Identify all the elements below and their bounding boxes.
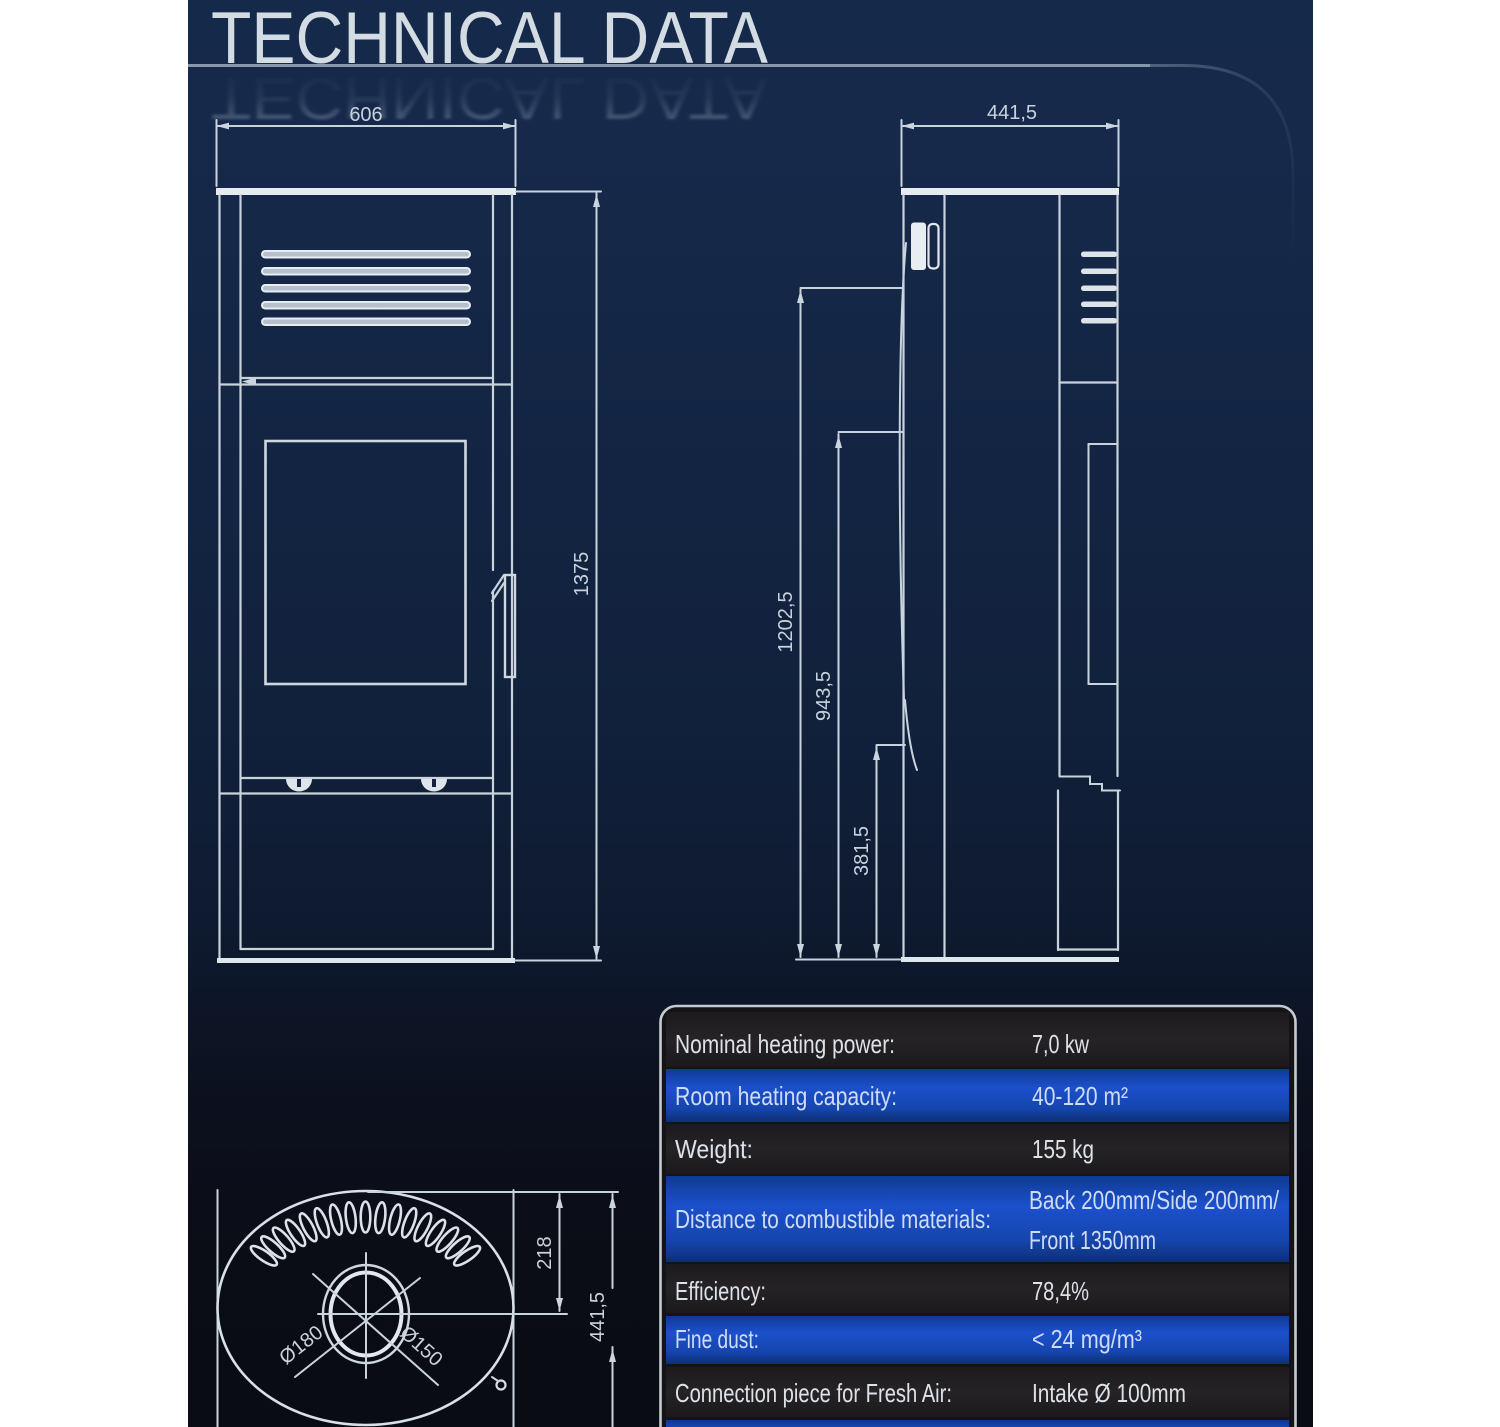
svg-text:1202,5: 1202,5 (775, 591, 797, 652)
svg-text:Connection piece for Fresh Air: Connection piece for Fresh Air: (675, 1378, 952, 1408)
svg-text:381,5: 381,5 (851, 826, 873, 876)
svg-text:7,0 kw: 7,0 kw (1032, 1029, 1089, 1059)
svg-text:Efficiency:: Efficiency: (675, 1276, 766, 1306)
svg-text:Nominal heating power:: Nominal heating power: (675, 1029, 895, 1059)
svg-text:TECHNICAL DATA: TECHNICAL DATA (211, 0, 768, 79)
svg-text:Back 200mm/Side 200mm/: Back 200mm/Side 200mm/ (1029, 1185, 1280, 1215)
svg-text:40-120 m²: 40-120 m² (1032, 1081, 1128, 1111)
svg-text:Distance to combustible materi: Distance to combustible materials: (675, 1204, 991, 1234)
svg-text:Room heating capacity:: Room heating capacity: (675, 1081, 897, 1111)
svg-text:606: 606 (349, 104, 382, 126)
svg-text:943,5: 943,5 (813, 671, 835, 721)
svg-text:Intake Ø 100mm: Intake Ø 100mm (1032, 1378, 1186, 1408)
svg-text:78,4%: 78,4% (1032, 1276, 1089, 1306)
svg-text:Fine dust:: Fine dust: (675, 1324, 759, 1354)
svg-text:Weight:: Weight: (675, 1134, 753, 1164)
svg-text:441,5: 441,5 (987, 102, 1037, 124)
svg-text:< 24 mg/m³: < 24 mg/m³ (1032, 1324, 1142, 1354)
svg-text:218: 218 (534, 1236, 556, 1269)
svg-text:155 kg: 155 kg (1032, 1134, 1094, 1164)
svg-text:1375: 1375 (571, 552, 593, 597)
svg-text:441,5: 441,5 (587, 1292, 609, 1342)
svg-text:Front 1350mm: Front 1350mm (1029, 1225, 1156, 1255)
